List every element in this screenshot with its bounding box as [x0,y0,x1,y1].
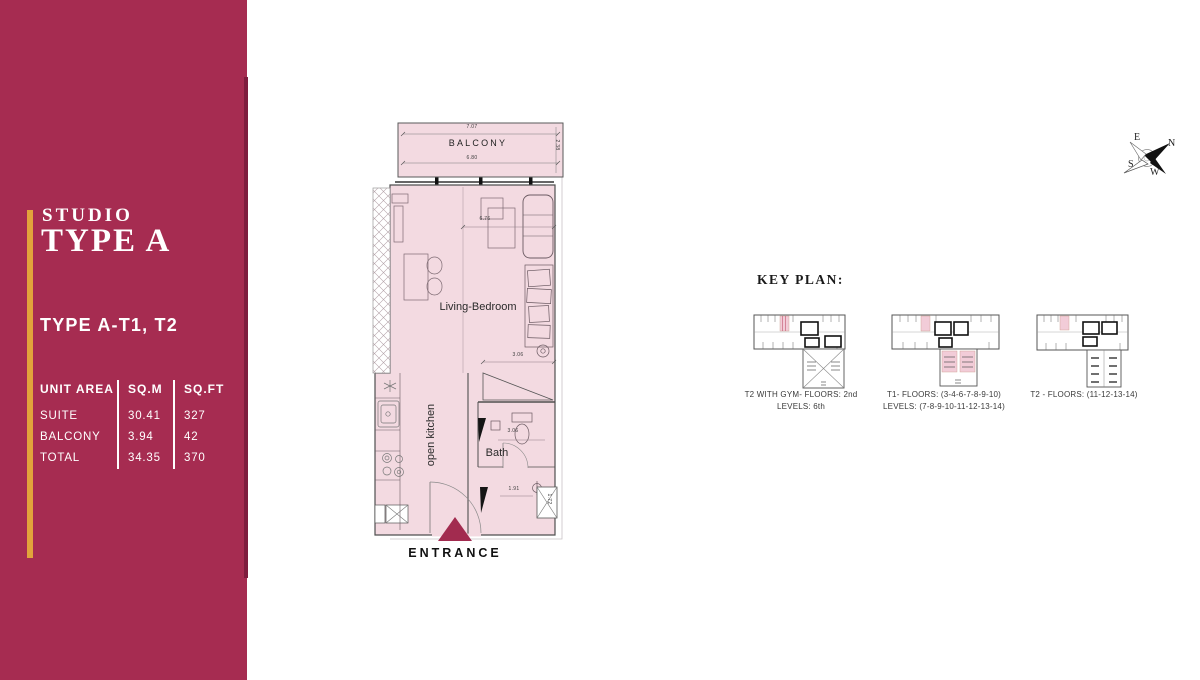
compass-west-label: W [1150,167,1159,178]
caption-line: T1- FLOORS: (3-4-6-7-8-9-10) [872,389,1016,401]
dim-balcony-inner-width: 6.80 [457,155,487,161]
caption-line: T2 - FLOORS: (11-12-13-14) [1023,389,1145,401]
bath-label: Bath [477,447,517,459]
keyplan-caption-t1: T1- FLOORS: (3-4-6-7-8-9-10) LEVELS: (7-… [872,389,1016,412]
table-row-sqm: 34.35 [117,448,173,469]
unit-area-table: UNIT AREA SQ.M SQ.FT SUITE 30.41 327 BAL… [40,380,232,469]
keyplan-t2 [1036,310,1131,390]
dim-balcony-width: 7.07 [457,124,487,130]
caption-line: LEVELS: (7-8-9-10-11-12-13-14) [872,401,1016,413]
balcony-label: BALCONY [430,138,526,148]
table-header-unit-area: UNIT AREA [40,380,117,406]
dim-bath-width: 3.06 [498,428,528,434]
dim-living-depth: 3.06 [503,352,533,358]
sidebar-edge-shadow [244,77,248,578]
brochure-page: STUDIO TYPE A TYPE A-T1, T2 UNIT AREA SQ… [0,0,1200,680]
table-row-sqft: 42 [173,427,232,448]
dim-entry-depth: 1.72 [546,487,552,511]
keyplan-caption-t2: T2 - FLOORS: (11-12-13-14) [1023,389,1145,401]
page-title: TYPE A [41,223,171,260]
gold-accent-bar [27,210,33,558]
compass-east-label: E [1134,132,1140,143]
keyplan-t2-gym [753,310,848,390]
caption-line: LEVELS: 6th [740,401,862,413]
keyplan-title: KEY PLAN: [757,272,844,288]
compass-north-label: N [1168,138,1175,149]
table-header-sqft: SQ.FT [173,380,232,406]
open-kitchen-label: open kitchen [425,390,437,480]
compass-south-label: S [1128,159,1134,170]
table-row-sqm: 3.94 [117,427,173,448]
table-row-sqm: 30.41 [117,406,173,427]
dim-entry-width: 1.91 [500,486,528,492]
sidebar: STUDIO TYPE A TYPE A-T1, T2 UNIT AREA SQ… [0,0,247,680]
keyplan-caption-t2-gym: T2 WITH GYM- FLOORS: 2nd LEVELS: 6th [740,389,862,412]
caption-line: T2 WITH GYM- FLOORS: 2nd [740,389,862,401]
unit-subtitle: TYPE A-T1, T2 [40,315,178,336]
entrance-label: ENTRANCE [407,546,503,560]
table-header-sqm: SQ.M [117,380,173,406]
dim-balcony-depth: 2.38 [554,134,560,156]
floorplan-drawing [370,115,570,575]
table-row-sqft: 327 [173,406,232,427]
table-row-label: BALCONY [40,427,117,448]
dim-living-width: 6.76 [470,216,500,222]
table-row-label: SUITE [40,406,117,427]
keyplan-t1 [891,310,1003,390]
floorplan: BALCONY Living-Bedroom open kitchen Bath… [370,115,570,575]
table-row-sqft: 370 [173,448,232,469]
living-bedroom-label: Living-Bedroom [428,301,528,313]
table-row-label: TOTAL [40,448,117,469]
